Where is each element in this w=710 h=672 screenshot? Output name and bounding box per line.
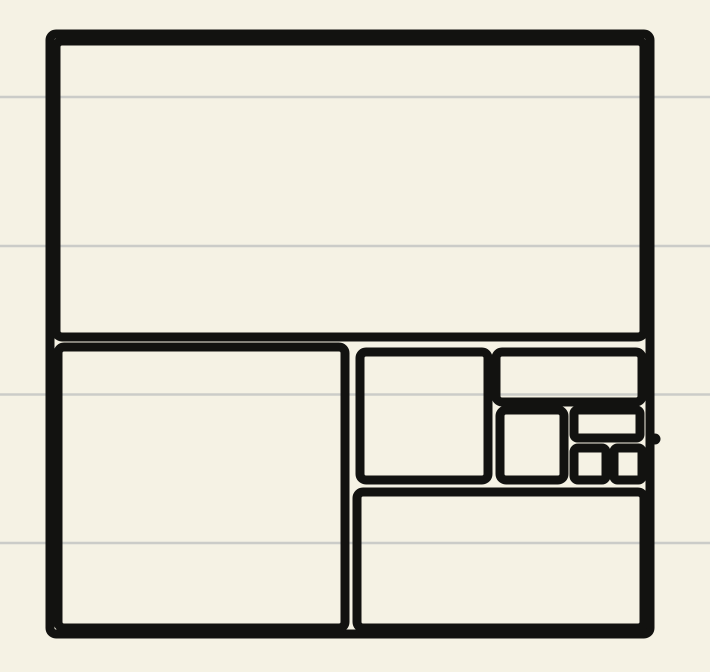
middle-square[interactable] bbox=[360, 352, 488, 480]
paper-canvas[interactable] bbox=[0, 0, 710, 672]
bottom-right-rectangle[interactable] bbox=[357, 492, 644, 628]
drawing-layer bbox=[0, 0, 710, 672]
stroke-endpoint-dot[interactable] bbox=[650, 434, 661, 445]
small-top-rectangle[interactable] bbox=[574, 410, 640, 438]
inner-square-b[interactable] bbox=[500, 410, 564, 480]
small-square-d[interactable] bbox=[614, 448, 642, 480]
small-square-c[interactable] bbox=[574, 448, 606, 480]
top-rectangle[interactable] bbox=[56, 41, 644, 337]
bottom-left-square[interactable] bbox=[58, 347, 345, 628]
